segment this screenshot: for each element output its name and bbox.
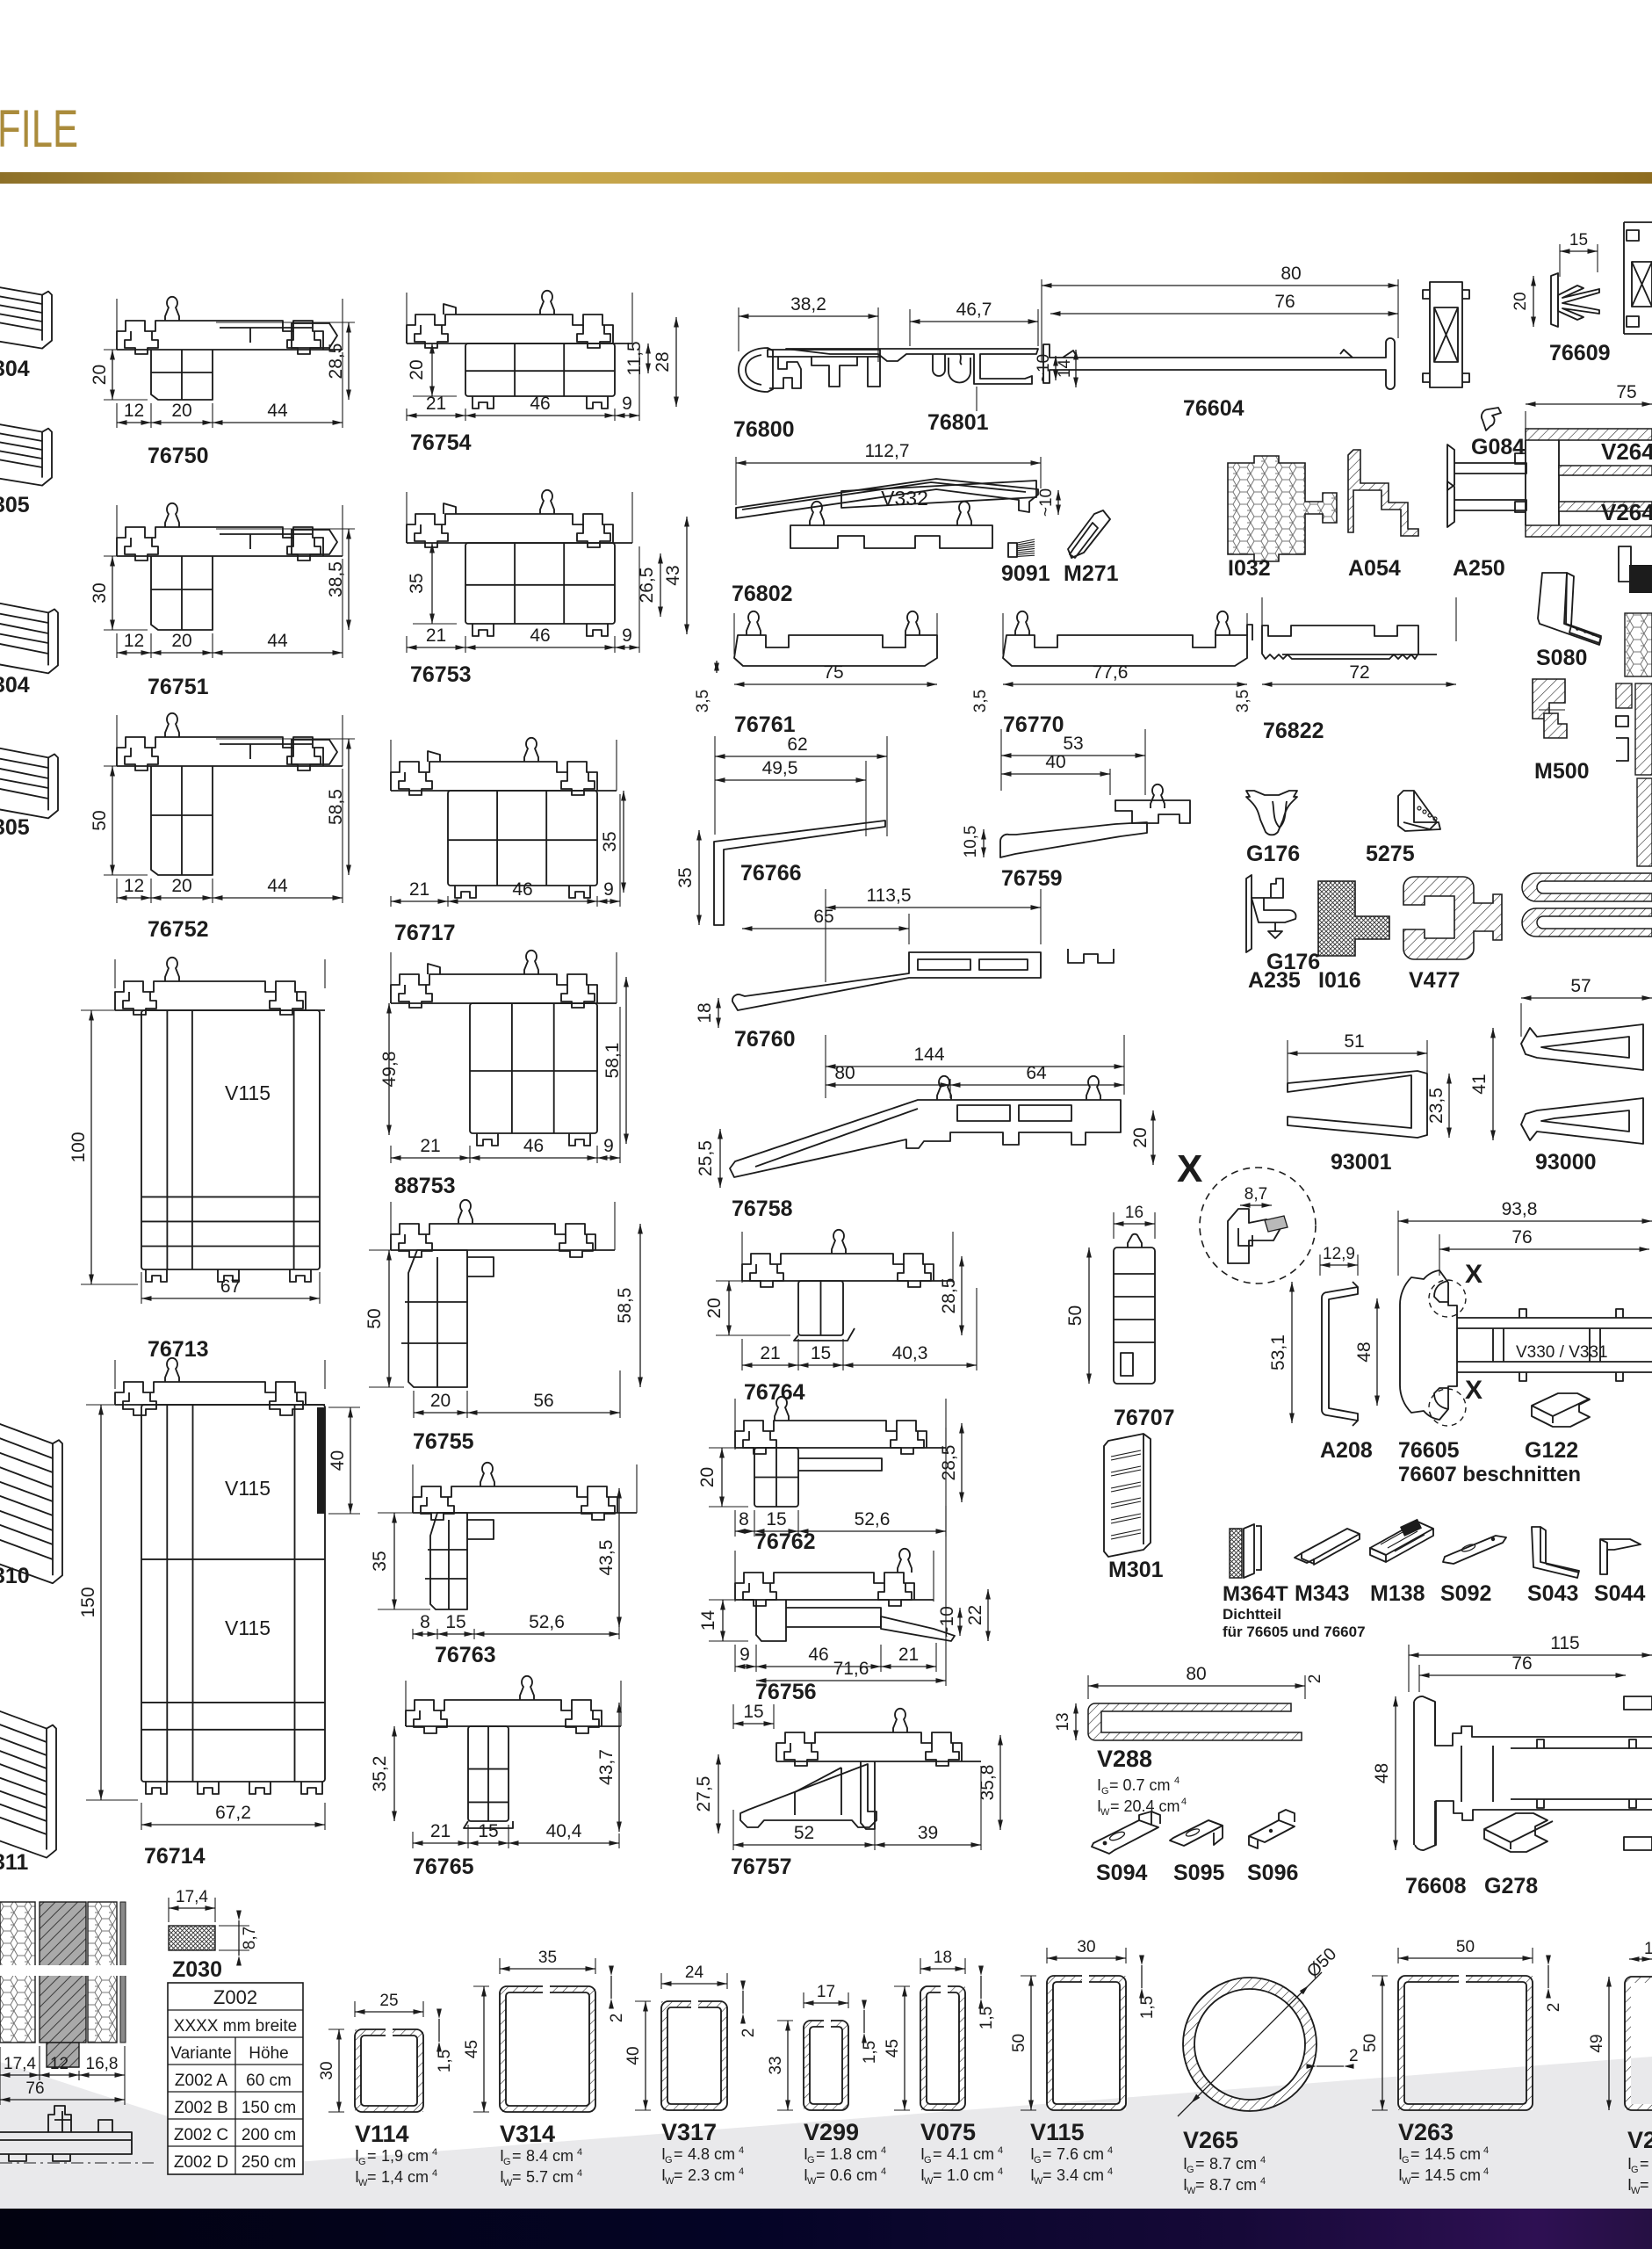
svg-text:G: G <box>358 2157 366 2167</box>
svg-text:44: 44 <box>267 876 288 896</box>
svg-text:=: = <box>674 2145 683 2163</box>
svg-text:Z002 A: Z002 A <box>175 2072 228 2090</box>
svg-text:8.7 cm: 8.7 cm <box>1209 2176 1257 2194</box>
svg-text:35: 35 <box>538 1949 557 1967</box>
svg-text:46: 46 <box>512 879 532 900</box>
svg-text:1,5: 1,5 <box>1138 1996 1157 2019</box>
svg-text:24: 24 <box>685 1963 704 1982</box>
svg-text:M500: M500 <box>1534 759 1590 784</box>
svg-text:4: 4 <box>577 2168 582 2179</box>
svg-text:93001: 93001 <box>1331 1150 1392 1175</box>
svg-text:3,5: 3,5 <box>971 690 990 712</box>
svg-text:45: 45 <box>463 2040 481 2058</box>
svg-text:1,5: 1,5 <box>977 2007 996 2029</box>
svg-text:14: 14 <box>698 1610 718 1631</box>
svg-text:43,7: 43,7 <box>596 1749 617 1785</box>
svg-text:4: 4 <box>998 2166 1003 2177</box>
svg-text:76: 76 <box>25 2079 44 2098</box>
svg-text:18: 18 <box>934 1949 952 1967</box>
svg-text:23,5: 23,5 <box>1426 1088 1446 1124</box>
svg-text:15: 15 <box>743 1702 763 1722</box>
svg-text:60 cm: 60 cm <box>246 2072 292 2090</box>
svg-text:35: 35 <box>600 831 620 851</box>
svg-text:G084: G084 <box>1471 435 1525 459</box>
svg-text:76717: 76717 <box>394 921 456 945</box>
svg-text:Z002: Z002 <box>213 1986 257 2008</box>
svg-text:= 0.7 cm: = 0.7 cm <box>1109 1776 1171 1794</box>
svg-text:57: 57 <box>1570 976 1591 996</box>
svg-text:8.7 cm: 8.7 cm <box>1209 2155 1257 2173</box>
svg-text:V264: V264 <box>1601 499 1652 525</box>
svg-text:33: 33 <box>767 2056 785 2074</box>
svg-text:2: 2 <box>1306 1674 1324 1684</box>
svg-text:56: 56 <box>533 1391 553 1411</box>
svg-text:76758: 76758 <box>732 1197 793 1221</box>
svg-text:5275: 5275 <box>1366 842 1415 866</box>
svg-text:W: W <box>1100 1807 1110 1818</box>
svg-text:49,5: 49,5 <box>762 758 798 778</box>
svg-text:3,5: 3,5 <box>694 690 712 712</box>
svg-text:2: 2 <box>1349 2047 1359 2065</box>
svg-text:3.4 cm: 3.4 cm <box>1057 2166 1104 2184</box>
svg-text:4: 4 <box>739 2166 744 2177</box>
svg-text:4: 4 <box>881 2145 886 2156</box>
svg-text:FILE: FILE <box>0 99 78 158</box>
svg-text:=: = <box>933 2166 942 2184</box>
svg-text:25,5: 25,5 <box>696 1140 716 1176</box>
svg-text:9: 9 <box>603 879 614 900</box>
svg-text:~10: ~10 <box>1037 488 1056 517</box>
svg-text:76753: 76753 <box>410 662 472 687</box>
svg-text:4: 4 <box>1174 1775 1179 1786</box>
svg-text:76766: 76766 <box>740 861 802 886</box>
svg-text:75: 75 <box>1616 382 1636 402</box>
svg-text:76754: 76754 <box>410 430 472 455</box>
svg-text:76757: 76757 <box>731 1855 792 1879</box>
svg-text:76756: 76756 <box>755 1680 817 1704</box>
svg-text:76713: 76713 <box>148 1337 209 1362</box>
svg-text:4: 4 <box>1483 2145 1489 2156</box>
svg-text:40: 40 <box>1045 752 1065 772</box>
svg-text:4.1 cm: 4.1 cm <box>947 2145 994 2163</box>
svg-text:12: 12 <box>124 401 144 421</box>
svg-text:~10: ~10 <box>937 1606 957 1638</box>
svg-text:=: = <box>367 2168 377 2186</box>
svg-text:46,7: 46,7 <box>956 300 992 320</box>
svg-text:X: X <box>1177 1147 1202 1190</box>
svg-text:V114: V114 <box>355 2121 409 2147</box>
svg-text:48: 48 <box>1354 1341 1374 1362</box>
svg-text:35: 35 <box>675 867 696 887</box>
svg-text:Z002 D: Z002 D <box>174 2153 228 2172</box>
svg-text:4: 4 <box>1107 2145 1113 2156</box>
svg-text:40: 40 <box>328 1450 348 1471</box>
svg-text:7.6 cm: 7.6 cm <box>1057 2145 1104 2163</box>
svg-text:V299: V299 <box>804 2119 859 2145</box>
svg-text:=: = <box>816 2145 826 2163</box>
svg-text:80: 80 <box>1280 264 1301 284</box>
svg-text:21: 21 <box>426 626 446 646</box>
svg-text:21: 21 <box>426 394 446 414</box>
svg-text:1.0 cm: 1.0 cm <box>947 2166 994 2184</box>
svg-text:M301: M301 <box>1108 1558 1164 1582</box>
svg-text:X: X <box>1465 1376 1482 1405</box>
svg-text:53,1: 53,1 <box>1268 1334 1288 1370</box>
svg-text:50: 50 <box>1010 2034 1028 2052</box>
svg-text:=: = <box>1195 2176 1205 2194</box>
svg-text:A054: A054 <box>1348 556 1401 581</box>
svg-text:80: 80 <box>834 1063 855 1083</box>
svg-text:1,4 cm: 1,4 cm <box>381 2168 429 2186</box>
svg-text:I016: I016 <box>1318 968 1361 993</box>
svg-text:=: = <box>1410 2145 1420 2163</box>
svg-text:144: 144 <box>913 1045 944 1065</box>
svg-text:46: 46 <box>523 1136 544 1156</box>
svg-text:20: 20 <box>1511 292 1530 310</box>
svg-text:3,5: 3,5 <box>1234 690 1252 712</box>
svg-text:0.6 cm: 0.6 cm <box>830 2166 877 2184</box>
svg-text:Z030: Z030 <box>172 1957 222 1982</box>
svg-text:=: = <box>512 2147 522 2165</box>
svg-text:75: 75 <box>823 662 843 683</box>
svg-text:S080: S080 <box>1536 646 1587 670</box>
svg-text:Höhe: Höhe <box>249 2044 288 2063</box>
svg-text:76: 76 <box>1274 292 1295 312</box>
svg-text:S094: S094 <box>1096 1861 1147 1885</box>
svg-text:=: = <box>816 2166 826 2184</box>
svg-text:S095: S095 <box>1173 1861 1224 1885</box>
svg-text:17,4: 17,4 <box>4 2055 36 2073</box>
svg-text:21: 21 <box>409 879 429 900</box>
svg-text:V477: V477 <box>1409 968 1460 993</box>
svg-text:V115: V115 <box>1030 2119 1085 2145</box>
svg-text:V264: V264 <box>1601 438 1652 465</box>
svg-text:49: 49 <box>1588 2034 1606 2052</box>
svg-text:40,4: 40,4 <box>546 1821 582 1841</box>
svg-text:21: 21 <box>420 1136 440 1156</box>
svg-text:11,5: 11,5 <box>624 341 645 375</box>
svg-text:76765: 76765 <box>413 1855 474 1879</box>
svg-text:150: 150 <box>78 1587 98 1617</box>
svg-text:8: 8 <box>739 1509 749 1529</box>
svg-text:39: 39 <box>918 1823 938 1843</box>
svg-text:76801: 76801 <box>927 410 989 435</box>
svg-text:80: 80 <box>1186 1664 1206 1684</box>
svg-text:304: 304 <box>0 673 30 698</box>
svg-text:M138: M138 <box>1370 1581 1425 1606</box>
svg-text:112,7: 112,7 <box>865 441 910 461</box>
svg-text:20: 20 <box>430 1391 451 1411</box>
svg-text:50: 50 <box>1456 1938 1475 1956</box>
svg-text:G176: G176 <box>1246 842 1300 866</box>
svg-text:93,8: 93,8 <box>1502 1199 1538 1219</box>
svg-text:67: 67 <box>220 1276 241 1297</box>
svg-text:16: 16 <box>1125 1204 1143 1222</box>
svg-text:4: 4 <box>577 2147 582 2158</box>
svg-text:76: 76 <box>1511 1227 1532 1247</box>
svg-text:M271: M271 <box>1064 561 1119 586</box>
svg-text:52,6: 52,6 <box>529 1612 565 1632</box>
svg-text:10,5: 10,5 <box>962 826 980 858</box>
svg-text:200 cm: 200 cm <box>242 2126 296 2144</box>
svg-text:20: 20 <box>704 1298 725 1318</box>
svg-text:V26: V26 <box>1627 2127 1652 2153</box>
svg-text:16,8: 16,8 <box>86 2055 119 2073</box>
svg-text:G: G <box>1034 2155 1042 2166</box>
svg-text:A250: A250 <box>1453 556 1505 581</box>
svg-text:113,5: 113,5 <box>867 886 912 906</box>
svg-text:G: G <box>924 2155 932 2166</box>
svg-text:13: 13 <box>1054 1712 1072 1731</box>
svg-text:15: 15 <box>766 1509 786 1529</box>
svg-text:G: G <box>1101 1786 1109 1797</box>
svg-text:12,9: 12,9 <box>1323 1245 1355 1263</box>
svg-text:46: 46 <box>530 394 550 414</box>
svg-text:62: 62 <box>787 734 807 755</box>
svg-text:44: 44 <box>267 631 288 651</box>
svg-text:46: 46 <box>808 1645 828 1665</box>
svg-text:67,2: 67,2 <box>215 1803 251 1823</box>
svg-text:4: 4 <box>1107 2166 1113 2177</box>
svg-text:20: 20 <box>697 1467 718 1487</box>
svg-text:Z002 B: Z002 B <box>174 2099 227 2117</box>
svg-text:V317: V317 <box>661 2119 717 2145</box>
svg-text:65: 65 <box>813 907 833 927</box>
svg-text:=: = <box>1410 2166 1420 2184</box>
svg-text:=: = <box>1195 2155 1205 2173</box>
svg-text:30: 30 <box>1077 1938 1095 1956</box>
svg-text:43: 43 <box>663 565 683 585</box>
svg-text:15: 15 <box>811 1343 831 1363</box>
svg-text:41: 41 <box>1469 1074 1490 1094</box>
svg-text:=: = <box>1042 2145 1052 2163</box>
svg-text:76764: 76764 <box>744 1380 805 1405</box>
svg-text:76822: 76822 <box>1263 719 1324 743</box>
svg-text:76762: 76762 <box>754 1529 816 1554</box>
svg-text:G: G <box>1187 2165 1194 2175</box>
svg-text:250 cm: 250 cm <box>242 2153 296 2172</box>
svg-text:S044: S044 <box>1594 1581 1645 1606</box>
svg-text:4: 4 <box>1260 2155 1266 2166</box>
svg-text:30: 30 <box>90 582 110 603</box>
svg-text:71,6: 71,6 <box>833 1659 869 1679</box>
svg-text:50: 50 <box>1065 1305 1086 1326</box>
svg-text:100: 100 <box>69 1132 89 1162</box>
svg-text:21: 21 <box>430 1821 451 1841</box>
svg-text:12: 12 <box>124 631 144 651</box>
svg-text:17: 17 <box>817 1983 835 2001</box>
svg-text:22: 22 <box>965 1605 985 1625</box>
svg-text:17,4: 17,4 <box>176 1888 208 1906</box>
svg-text:5.7 cm: 5.7 cm <box>526 2168 574 2186</box>
svg-text:305: 305 <box>0 815 30 840</box>
svg-text:77,6: 77,6 <box>1093 662 1129 683</box>
svg-text:76800: 76800 <box>733 417 795 442</box>
svg-text:4: 4 <box>881 2166 886 2177</box>
svg-text:28,5: 28,5 <box>939 1278 959 1314</box>
svg-text:20: 20 <box>171 401 191 421</box>
svg-text:88753: 88753 <box>394 1174 456 1198</box>
svg-text:Dichtteil: Dichtteil <box>1223 1606 1281 1623</box>
svg-text:V115: V115 <box>225 1081 271 1104</box>
svg-text:G: G <box>665 2155 673 2166</box>
svg-text:45: 45 <box>884 2039 902 2057</box>
svg-text:44: 44 <box>267 401 288 421</box>
svg-text:=: = <box>674 2166 683 2184</box>
svg-text:20: 20 <box>171 631 191 651</box>
svg-text:4: 4 <box>1483 2166 1489 2177</box>
svg-text:40,3: 40,3 <box>892 1343 928 1363</box>
svg-text:V330 / V331: V330 / V331 <box>1516 1343 1608 1362</box>
svg-text:35: 35 <box>407 573 427 593</box>
svg-text:1,5: 1,5 <box>436 2050 454 2072</box>
svg-text:50: 50 <box>90 810 110 830</box>
svg-text:76714: 76714 <box>144 1844 206 1869</box>
svg-text:76755: 76755 <box>413 1429 474 1454</box>
svg-text:15: 15 <box>445 1612 465 1632</box>
svg-text:9: 9 <box>739 1645 750 1665</box>
svg-text:1: 1 <box>1644 1940 1652 1958</box>
svg-text:52,6: 52,6 <box>855 1509 891 1529</box>
svg-text:76609: 76609 <box>1549 341 1611 365</box>
svg-text:20: 20 <box>171 876 191 896</box>
svg-text:=: = <box>933 2145 942 2163</box>
svg-text:76770: 76770 <box>1003 712 1064 737</box>
svg-text:76605: 76605 <box>1398 1438 1460 1463</box>
svg-text:M364T: M364T <box>1223 1582 1288 1606</box>
svg-text:18: 18 <box>695 1002 715 1023</box>
svg-text:2.3 cm: 2.3 cm <box>688 2166 735 2184</box>
svg-text:G: G <box>1402 2155 1410 2166</box>
svg-text:14.5 cm: 14.5 cm <box>1425 2166 1481 2184</box>
svg-text:21: 21 <box>760 1343 780 1363</box>
svg-text:2: 2 <box>1545 2003 1563 2013</box>
svg-text:S043: S043 <box>1527 1581 1578 1606</box>
svg-text:76608: 76608 <box>1405 1874 1467 1898</box>
svg-text:Z002 C: Z002 C <box>174 2126 228 2144</box>
svg-text:35: 35 <box>370 1551 390 1571</box>
svg-text:4.8 cm: 4.8 cm <box>688 2145 735 2163</box>
svg-text:9091: 9091 <box>1001 561 1050 586</box>
svg-text:14: 14 <box>1056 359 1074 379</box>
svg-text:4: 4 <box>998 2145 1003 2156</box>
svg-text:9: 9 <box>622 394 632 414</box>
svg-text:93000: 93000 <box>1535 1150 1597 1175</box>
svg-text:1,5: 1,5 <box>861 2041 879 2064</box>
svg-text:S096: S096 <box>1247 1861 1298 1885</box>
svg-text:305: 305 <box>0 493 30 517</box>
svg-text:1,9 cm: 1,9 cm <box>381 2147 429 2165</box>
svg-text:V265: V265 <box>1183 2127 1238 2153</box>
svg-text:20: 20 <box>90 365 110 385</box>
svg-text:A208: A208 <box>1320 1438 1373 1463</box>
svg-text:V075: V075 <box>920 2119 976 2145</box>
svg-text:76763: 76763 <box>435 1643 496 1667</box>
svg-text:V288: V288 <box>1097 1746 1152 1772</box>
svg-text:G: G <box>1631 2165 1639 2175</box>
svg-text:46: 46 <box>530 626 550 646</box>
svg-text:25: 25 <box>379 1992 398 2010</box>
svg-text:4: 4 <box>739 2145 744 2156</box>
svg-text:38,2: 38,2 <box>790 294 826 315</box>
svg-text:53: 53 <box>1063 734 1083 754</box>
svg-text:9: 9 <box>622 626 632 646</box>
svg-text:76802: 76802 <box>732 582 793 606</box>
svg-text:150 cm: 150 cm <box>242 2099 296 2117</box>
svg-text:49,8: 49,8 <box>379 1052 400 1088</box>
svg-text:310: 310 <box>0 1564 30 1588</box>
svg-text:8: 8 <box>420 1612 430 1632</box>
svg-text:G: G <box>503 2157 511 2167</box>
svg-text:V314: V314 <box>500 2121 555 2147</box>
svg-text:21: 21 <box>898 1645 919 1665</box>
svg-text:12: 12 <box>50 2055 69 2073</box>
svg-text:2: 2 <box>608 2014 626 2023</box>
svg-text:M343: M343 <box>1295 1581 1350 1606</box>
svg-text:50: 50 <box>364 1308 385 1328</box>
svg-text:76607 beschnitten: 76607 beschnitten <box>1398 1463 1581 1486</box>
svg-text:4: 4 <box>1181 1797 1187 1807</box>
svg-text:48: 48 <box>1372 1763 1392 1783</box>
svg-text:S092: S092 <box>1440 1581 1491 1606</box>
svg-text:1.8 cm: 1.8 cm <box>830 2145 877 2163</box>
svg-text:A235: A235 <box>1248 968 1301 993</box>
svg-text:30: 30 <box>318 2061 336 2079</box>
svg-text:G: G <box>807 2155 815 2166</box>
svg-text:43,5: 43,5 <box>596 1540 617 1576</box>
svg-text:15: 15 <box>1569 231 1588 249</box>
svg-text:27,5: 27,5 <box>694 1776 714 1812</box>
svg-text:Variante: Variante <box>170 2044 231 2063</box>
svg-text:=: = <box>1042 2166 1052 2184</box>
svg-text:8,7: 8,7 <box>1244 1185 1267 1204</box>
svg-text:76751: 76751 <box>148 675 209 699</box>
svg-text:311: 311 <box>0 1850 28 1875</box>
svg-text:58,5: 58,5 <box>615 1288 635 1324</box>
svg-text:12: 12 <box>124 876 144 896</box>
svg-text:15: 15 <box>478 1821 498 1841</box>
svg-text:für 76605 und 76607: für 76605 und 76607 <box>1223 1623 1366 1640</box>
svg-text:9: 9 <box>603 1136 614 1156</box>
svg-text:=: = <box>512 2168 522 2186</box>
svg-text:72: 72 <box>1349 662 1369 683</box>
svg-text:14.5 cm: 14.5 cm <box>1425 2145 1481 2163</box>
svg-text:76760: 76760 <box>734 1027 796 1052</box>
svg-text:20: 20 <box>1130 1127 1151 1147</box>
svg-text:76759: 76759 <box>1001 866 1063 891</box>
svg-text:V115: V115 <box>225 1616 271 1639</box>
svg-text:= 7: = 7 <box>1640 2176 1652 2194</box>
svg-text:52: 52 <box>794 1823 814 1843</box>
svg-text:115: 115 <box>1550 1633 1579 1653</box>
svg-text:2: 2 <box>739 2028 758 2038</box>
svg-text:304: 304 <box>0 357 30 381</box>
svg-text:= 7: = 7 <box>1640 2155 1652 2173</box>
svg-text:G122: G122 <box>1525 1438 1578 1463</box>
svg-text:76761: 76761 <box>734 712 796 737</box>
svg-text:= 20.4 cm: = 20.4 cm <box>1110 1797 1180 1815</box>
svg-text:50: 50 <box>1361 2034 1380 2052</box>
svg-text:4: 4 <box>432 2147 437 2158</box>
svg-text:76752: 76752 <box>148 917 209 942</box>
svg-text:=: = <box>367 2147 377 2165</box>
svg-text:76604: 76604 <box>1183 396 1244 421</box>
svg-text:8.4 cm: 8.4 cm <box>526 2147 574 2165</box>
svg-text:V115: V115 <box>225 1477 271 1500</box>
svg-text:35,2: 35,2 <box>370 1756 390 1792</box>
svg-text:64: 64 <box>1026 1063 1047 1083</box>
svg-text:V332: V332 <box>881 487 928 510</box>
